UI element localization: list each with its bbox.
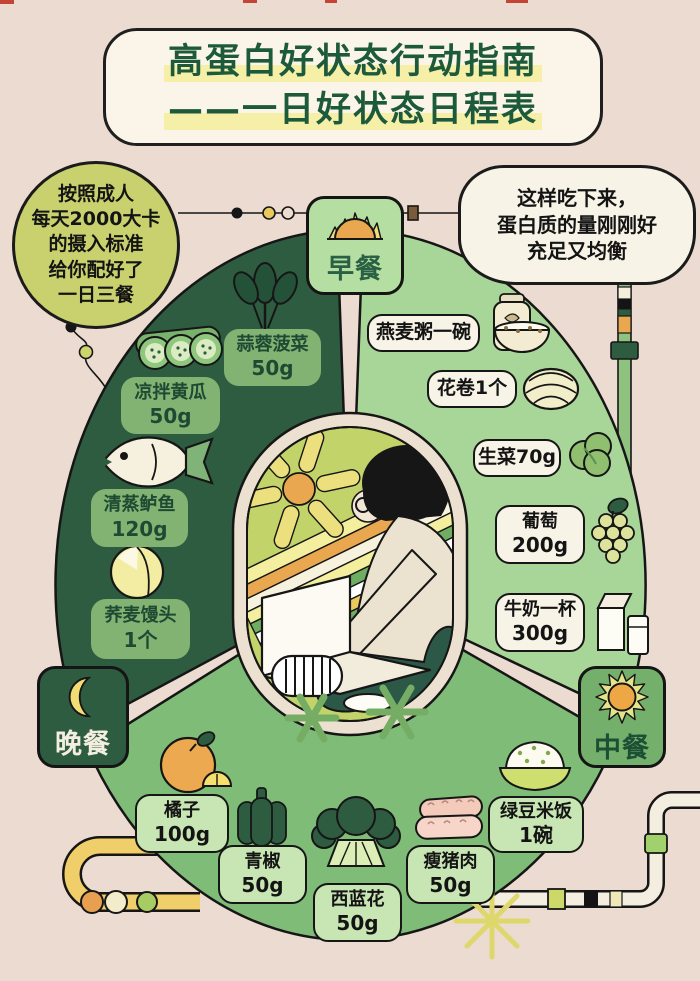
bubble-text: 充足又均衡 [527,238,627,264]
buckwheat-bun-icon [111,546,163,598]
dinner-badge-label: 晚餐 [55,722,111,761]
label-mung-bean-rice: 绿豆米饭 1碗 [488,796,584,853]
label-garlic-spinach: 蒜蓉菠菜 50g [224,329,321,386]
moon-icon [60,674,106,720]
label-oatmeal: 燕麦粥一碗 [367,314,480,352]
bubble-text: 每天2000大卡 [32,207,161,232]
label-tangerine: 橘子 100g [135,794,229,853]
left-speech-bubble: 按照成人 每天2000大卡 的摄入标准 给你配好了 一日三餐 [12,161,180,329]
bubble-text: 给你配好了 [48,258,143,283]
title-line-1: 高蛋白好状态行动指南 [164,41,542,85]
label-buckwheat-bun: 荞麦馒头 1个 [91,599,190,659]
label-steamed-roll: 花卷1个 [427,370,517,408]
cucumber-icon [135,326,222,369]
left-connector-line [178,207,310,219]
bubble-text: 的摄入标准 [48,232,143,257]
bubble-text: 这样吃下来， [517,185,637,211]
label-grapes: 葡萄 200g [495,505,585,564]
right-connector-line [402,206,462,220]
title-line-2: ——一日好状态日程表 [164,89,542,133]
label-broccoli: 西蓝花 50g [313,883,402,942]
top-edge-marks [0,0,528,4]
breakfast-badge: 早餐 [306,196,404,295]
bubble-text: 按照成人 [58,182,134,207]
steamed-roll-icon [524,369,578,409]
bubble-text: 蛋白质的量刚刚好 [497,212,657,238]
label-milk: 牛奶一杯 300g [495,593,585,652]
breakfast-badge-label: 早餐 [327,247,383,286]
infographic-poster: 高蛋白好状态行动指南 ——一日好状态日程表 按照成人 每天2000大卡 的摄入标… [0,0,700,981]
title-box: 高蛋白好状态行动指南 ——一日好状态日程表 [103,28,603,146]
rising-sun-icon [324,205,386,245]
label-lean-pork: 瘦猪肉 50g [406,845,495,904]
bubble-text: 一日三餐 [58,283,134,308]
label-cucumber-salad: 凉拌黄瓜 50g [121,377,220,434]
sun-icon [595,670,649,724]
left-bubble-trail [66,322,109,393]
label-lettuce: 生菜70g [473,439,561,477]
dinner-badge: 晚餐 [37,666,129,768]
striped-cushion [272,656,342,696]
lunch-badge-label: 中餐 [594,726,650,765]
label-steamed-bass: 清蒸鲈鱼 120g [91,489,188,547]
lunch-badge: 中餐 [578,666,666,768]
lean-pork-icon [416,796,483,839]
right-speech-bubble: 这样吃下来， 蛋白质的量刚刚好 充足又均衡 [458,165,696,285]
label-green-pepper: 青椒 50g [218,845,307,904]
